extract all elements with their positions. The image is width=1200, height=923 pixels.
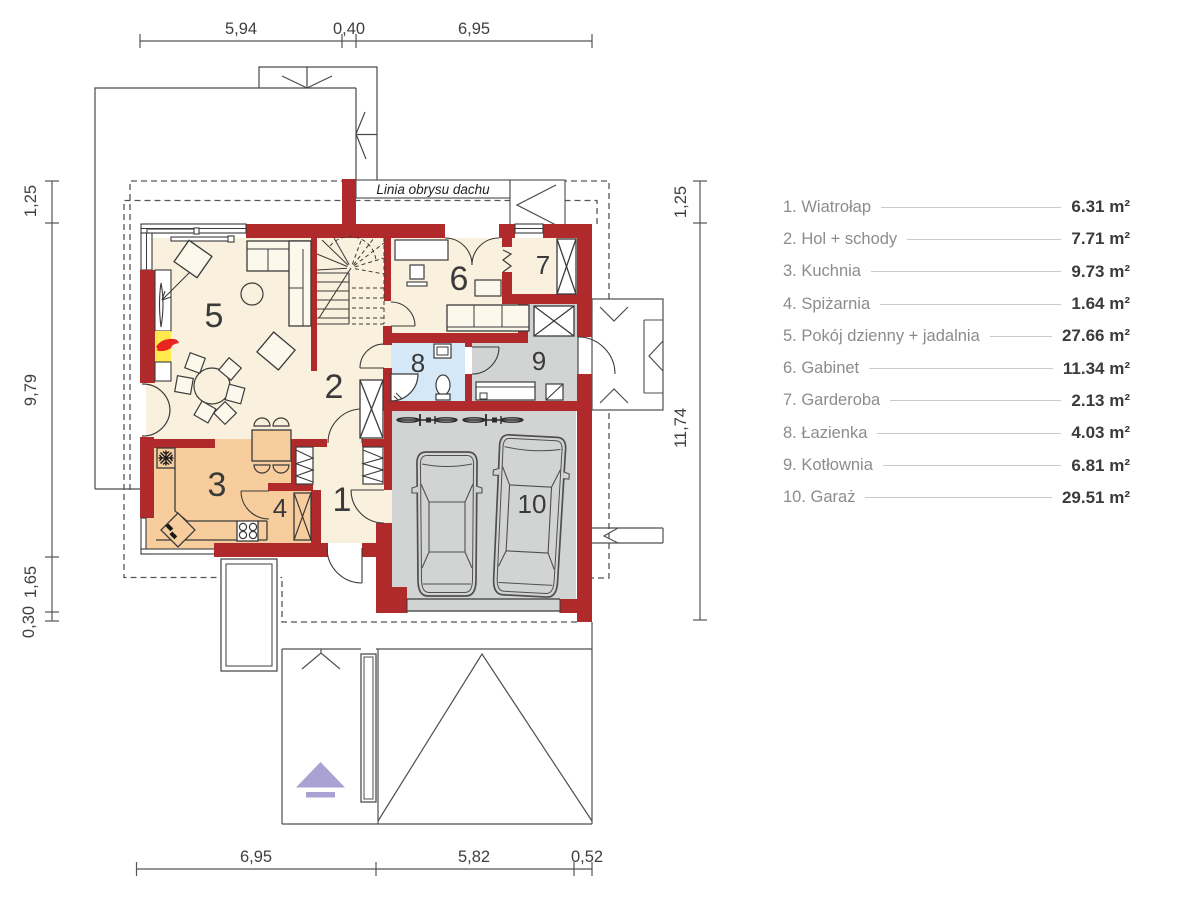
- svg-text:2: 2: [325, 368, 344, 406]
- svg-text:1: 1: [333, 481, 352, 519]
- svg-text:6: 6: [450, 260, 469, 298]
- svg-text:6,95: 6,95: [240, 848, 272, 866]
- svg-text:9,79: 9,79: [22, 374, 40, 406]
- svg-text:5,82: 5,82: [458, 848, 490, 866]
- svg-text:5,94: 5,94: [225, 20, 257, 38]
- svg-text:0,52: 0,52: [571, 848, 603, 866]
- svg-text:7: 7: [536, 250, 550, 280]
- svg-text:Linia obrysu dachu: Linia obrysu dachu: [376, 182, 490, 197]
- svg-text:0,40: 0,40: [333, 20, 365, 38]
- svg-text:10: 10: [518, 489, 547, 519]
- svg-text:1,25: 1,25: [22, 185, 40, 217]
- svg-text:4: 4: [273, 493, 287, 523]
- svg-text:9: 9: [532, 346, 546, 376]
- svg-text:1,65: 1,65: [22, 566, 40, 598]
- svg-text:8: 8: [411, 348, 425, 378]
- svg-text:6,95: 6,95: [458, 20, 490, 38]
- svg-text:5: 5: [205, 297, 224, 335]
- svg-text:11,74: 11,74: [672, 408, 690, 448]
- svg-text:3: 3: [208, 466, 227, 504]
- svg-text:0,30: 0,30: [20, 606, 38, 638]
- svg-text:1,25: 1,25: [672, 186, 690, 218]
